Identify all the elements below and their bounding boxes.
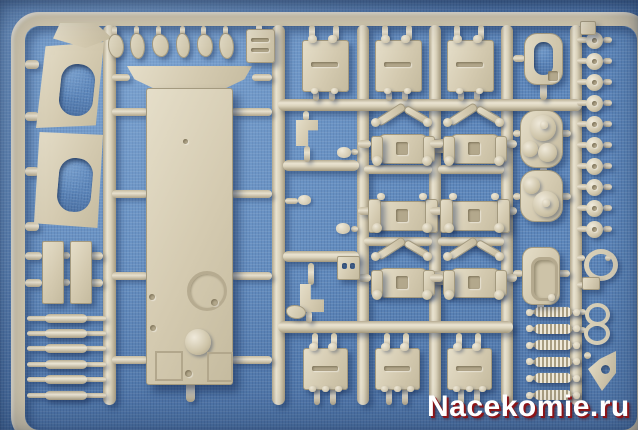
sprue-connector-stub xyxy=(112,190,148,198)
sprue-connector-stub xyxy=(303,111,309,121)
bogie-knob xyxy=(423,118,432,127)
wheel-hub-dot xyxy=(592,143,597,148)
spring-coil-part xyxy=(534,340,572,350)
sprue-connector-stub xyxy=(186,382,195,402)
bogie-wheel-hub xyxy=(494,223,504,233)
box-rib-detail xyxy=(251,38,269,42)
hull-rivet xyxy=(183,139,188,144)
suspension-bogie-part xyxy=(371,122,433,168)
hull-rivet xyxy=(185,370,192,377)
turret-disc xyxy=(522,141,538,157)
small-detail-part xyxy=(219,33,234,59)
sprue-connector-stub xyxy=(603,205,612,211)
wheel-hub-dot xyxy=(592,101,597,106)
hatch-slot-detail xyxy=(384,62,411,67)
hinge-knob xyxy=(472,343,481,351)
sprue-connector-stub xyxy=(308,263,314,285)
bogie-wheel-hub xyxy=(372,290,382,300)
axle-rod-sleeve xyxy=(45,314,87,323)
road-wheel-part xyxy=(586,221,603,238)
turret-dome-knob xyxy=(542,199,550,207)
hatch-slot-detail xyxy=(456,366,482,371)
bogie-knob xyxy=(443,118,452,127)
sprue-connector-stub xyxy=(231,190,272,198)
hinge-knob xyxy=(328,35,337,43)
spring-coil-part xyxy=(534,357,572,367)
sprue-connector-stub xyxy=(231,272,272,280)
hatch-plate-part xyxy=(303,348,348,390)
hinge-knob xyxy=(407,386,414,392)
photo-background: Nacekomie.ru xyxy=(0,0,638,430)
wheel-hub-dot xyxy=(592,185,597,190)
road-wheel-part xyxy=(586,158,603,175)
hinge-knob xyxy=(335,386,342,392)
sprue-connector-stub xyxy=(430,140,443,148)
sprue-connector-stub xyxy=(252,74,272,81)
hinge-knob xyxy=(473,35,482,43)
bogie-knob xyxy=(419,193,427,200)
sprue-connector-stub xyxy=(603,121,612,127)
sprue-connector-stub xyxy=(25,167,39,176)
hatch-plate-part xyxy=(375,40,422,92)
turret-dome-part xyxy=(520,110,563,168)
knob-part xyxy=(337,147,351,158)
sprue-connector-stub xyxy=(112,108,148,116)
spring-end-knob xyxy=(526,342,533,349)
road-wheel-part xyxy=(586,74,603,91)
hull-rivet xyxy=(149,294,155,300)
sprue-connector-stub xyxy=(304,146,310,162)
turret-disc xyxy=(523,177,540,194)
sprue-connector-stub xyxy=(584,352,591,359)
bogie-knob xyxy=(423,252,432,261)
sprue-connector-stub xyxy=(25,60,39,69)
small-detail-part xyxy=(286,305,306,319)
sprue-connector-stub xyxy=(306,311,312,323)
hull-flange xyxy=(127,66,252,90)
bogie-wheel-hub xyxy=(494,156,504,166)
wheel-hub-dot xyxy=(592,122,597,127)
bogie-wheel-hub xyxy=(444,290,454,300)
bogie-wheel-hub xyxy=(444,156,454,166)
spring-coil-part xyxy=(534,373,572,383)
knob-part xyxy=(336,223,350,234)
sprue-connector-stub xyxy=(112,74,130,81)
strip-part xyxy=(70,241,92,304)
bracket-part xyxy=(588,351,616,391)
small-detail-part xyxy=(130,33,145,59)
spring-coil-part xyxy=(534,324,572,334)
hull-ring-detail xyxy=(187,271,227,311)
hatch-slot-detail xyxy=(384,366,410,371)
hatch-step-detail xyxy=(548,71,558,81)
sprue-connector-stub xyxy=(351,226,358,232)
sprue-connector-stub xyxy=(25,279,42,287)
sprue-connector-stub xyxy=(358,140,371,148)
small-detail-part xyxy=(197,34,213,57)
small-detail-part xyxy=(108,34,124,58)
bogie-knob xyxy=(377,193,385,200)
watermark-text: Nacekomie.ru xyxy=(427,390,630,424)
box-rib-detail xyxy=(251,48,269,52)
sprue-connector-stub xyxy=(603,142,612,148)
knob-part xyxy=(298,195,311,205)
sprue-connector-stub xyxy=(603,226,612,232)
bogie-slot-detail xyxy=(468,142,480,155)
spring-coil-part xyxy=(534,307,572,317)
road-wheel-part xyxy=(586,200,603,217)
hatch-plate-part xyxy=(447,40,494,92)
wheel-hub-dot xyxy=(592,80,597,85)
hinge-knob xyxy=(381,343,390,351)
sprue-parts-layer xyxy=(0,0,638,430)
axle-rod-sleeve xyxy=(45,344,87,353)
wheel-hub-dot xyxy=(592,59,597,64)
hatch-knob xyxy=(548,294,555,301)
bogie-slot-detail xyxy=(396,142,408,155)
bogie-slot-detail xyxy=(468,209,480,222)
hinge-knob xyxy=(476,88,483,94)
hull-part xyxy=(146,88,233,385)
suspension-bogie-part xyxy=(371,189,433,235)
wheel-hub-dot xyxy=(592,38,597,43)
plate-hole xyxy=(342,263,347,269)
hinge-knob xyxy=(400,343,409,351)
road-wheel-part xyxy=(586,95,603,112)
sprue-connector-stub xyxy=(603,37,612,43)
spring-end-knob xyxy=(573,325,580,332)
hinge-knob xyxy=(328,343,337,351)
bogie-slot-detail xyxy=(396,276,408,289)
sprue-connector-stub xyxy=(603,58,612,64)
hinge-knob xyxy=(453,35,462,43)
spring-end-knob xyxy=(526,358,533,365)
hatch-plate-part xyxy=(375,348,420,390)
small-detail-part xyxy=(152,34,169,57)
hinge-knob xyxy=(311,88,318,94)
sprue-connector-stub xyxy=(603,184,612,190)
suspension-bogie-part xyxy=(371,256,433,302)
sprue-connector-stub xyxy=(231,356,272,364)
bogie-slot-detail xyxy=(396,209,408,222)
bracket-hole xyxy=(601,365,610,374)
hatch-slot-detail xyxy=(311,62,338,67)
spring-end-knob xyxy=(573,342,580,349)
bogie-wheel-hub xyxy=(422,223,432,233)
bogie-wheel-hub xyxy=(422,156,432,166)
hinge-knob xyxy=(456,88,463,94)
sprue-rail-vertical xyxy=(272,25,285,405)
spring-end-knob xyxy=(573,309,580,316)
side-plate-part xyxy=(34,132,103,228)
bogie-knob xyxy=(371,252,380,261)
bogie-knob xyxy=(495,252,504,261)
hatch-slot-detail xyxy=(456,62,483,67)
axle-rod-sleeve xyxy=(45,329,87,338)
road-wheel-part xyxy=(586,179,603,196)
axle-rod-sleeve xyxy=(45,391,87,400)
hull-square-detail xyxy=(207,352,233,382)
hinge-knob xyxy=(401,35,410,43)
suspension-bogie-part xyxy=(443,122,505,168)
suspension-bogie-part xyxy=(443,189,505,235)
ring-part xyxy=(584,322,610,345)
wheel-hub-dot xyxy=(592,227,597,232)
road-wheel-part xyxy=(586,116,603,133)
bogie-wheel-hub xyxy=(422,290,432,300)
hinge-knob xyxy=(309,386,316,392)
hull-rivet xyxy=(211,299,218,306)
hinge-knob xyxy=(404,88,411,94)
box-part xyxy=(246,29,275,63)
bracket-part xyxy=(296,120,318,146)
plate-hole xyxy=(350,263,355,269)
hinge-knob xyxy=(453,343,462,351)
sprue-rail-horizontal xyxy=(278,321,513,333)
sprue-connector-stub xyxy=(603,79,612,85)
sprue-connector-stub xyxy=(112,272,148,280)
hinge-knob xyxy=(394,386,401,392)
small-detail-part xyxy=(176,33,190,58)
suspension-bogie-part xyxy=(443,256,505,302)
axle-rod-sleeve xyxy=(45,360,87,369)
sprue-connector-stub xyxy=(231,108,272,116)
hinge-knob xyxy=(308,35,317,43)
axle-rod-sleeve xyxy=(45,375,87,384)
bogie-knob xyxy=(449,193,457,200)
road-wheel-part xyxy=(586,137,603,154)
sprue-connector-stub xyxy=(285,198,298,204)
sprue-connector-stub xyxy=(25,112,39,121)
hinge-knob xyxy=(331,88,338,94)
plate-with-holes-part xyxy=(337,256,360,280)
small-plate-part xyxy=(580,21,596,35)
hatch-part xyxy=(524,33,563,85)
turret-disc xyxy=(538,143,557,162)
bogie-wheel-hub xyxy=(372,223,382,233)
spring-end-knob xyxy=(526,325,533,332)
sprue-connector-stub xyxy=(603,100,612,106)
sprue-connector-stub xyxy=(112,356,148,364)
sprue-connector-stub xyxy=(430,274,443,282)
hatch-plate-part xyxy=(447,348,492,390)
bogie-knob xyxy=(491,193,499,200)
hinge-knob xyxy=(384,88,391,94)
hatch-slot-detail xyxy=(312,366,338,371)
bogie-wheel-hub xyxy=(444,223,454,233)
hinge-knob xyxy=(381,386,388,392)
hull-square-detail xyxy=(155,351,183,381)
bogie-wheel-hub xyxy=(372,156,382,166)
hinge-knob xyxy=(309,343,318,351)
spring-end-knob xyxy=(526,375,533,382)
bogie-slot-detail xyxy=(468,276,480,289)
hatch-part xyxy=(522,247,560,305)
bogie-knob xyxy=(371,118,380,127)
wheel-hub-dot xyxy=(592,206,597,211)
sprue-rail-horizontal xyxy=(283,160,359,171)
hinge-knob xyxy=(381,35,390,43)
sprue-connector-stub xyxy=(603,163,612,169)
side-plate-part xyxy=(36,42,104,128)
sprue-connector-stub xyxy=(25,252,42,260)
side-plate-oval-opening xyxy=(56,157,95,214)
turret-dome-part xyxy=(520,170,563,222)
spring-end-knob xyxy=(526,309,533,316)
hinge-knob xyxy=(322,386,329,392)
turret-dome-knob xyxy=(540,121,548,129)
hull-rivet xyxy=(150,325,156,331)
sprue-connector-stub xyxy=(351,149,358,155)
bogie-knob xyxy=(443,252,452,261)
strip-part xyxy=(42,241,64,304)
side-plate-oval-opening xyxy=(57,62,96,117)
bogie-wheel-hub xyxy=(494,290,504,300)
hatch-plate-part xyxy=(302,40,349,92)
wheel-hub-dot xyxy=(592,164,597,169)
spring-end-knob xyxy=(573,375,580,382)
small-plate-part xyxy=(582,277,600,290)
bogie-knob xyxy=(495,118,504,127)
road-wheel-part xyxy=(586,53,603,70)
